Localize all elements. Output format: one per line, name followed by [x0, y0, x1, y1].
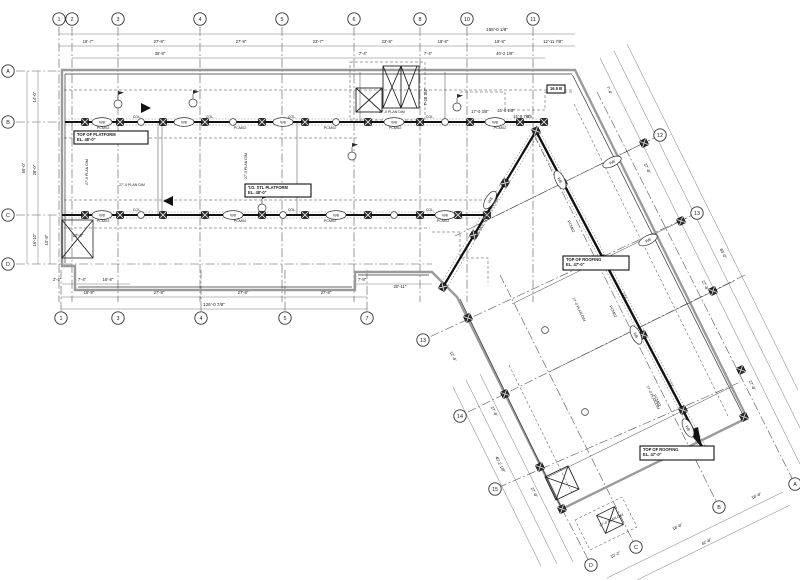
grid-bubble-label: 15	[492, 487, 498, 493]
beam-tag: W8	[680, 417, 697, 439]
dim-text: 168'-0 1/8"	[486, 27, 508, 32]
grid-bubble-label: 3	[117, 17, 120, 23]
grid-bubble-label: 5	[284, 316, 287, 322]
column-marker	[540, 118, 547, 125]
dim-text: 10'-8"	[44, 234, 49, 245]
grid-bubble-label: 13	[420, 338, 426, 344]
dim-text: 23'-7"	[313, 39, 324, 44]
column-marker	[516, 118, 523, 125]
dim-text: PCM02	[234, 126, 247, 130]
beam-tag: W8	[601, 154, 623, 171]
grid-bubble-label: 8	[419, 17, 422, 23]
grid-bubble-label: D	[589, 563, 593, 569]
dim-text: 56'-0"	[21, 162, 26, 173]
beam-tag-label: W8	[280, 120, 286, 125]
grid-bubble-label: 2	[71, 17, 74, 23]
column-marker	[364, 211, 371, 218]
dim-text: 42'-8"	[700, 537, 712, 546]
column-marker	[116, 211, 123, 218]
dimension-text: 168'-0 1/8"18'-7"27'-8"27'-8"23'-7"22'-8…	[21, 27, 763, 559]
dim-text: 18'-8"	[750, 491, 762, 500]
dim-text: PCM02	[97, 219, 110, 223]
grid-bubble-label: C	[6, 213, 10, 219]
connector-circle	[280, 212, 287, 219]
dim-text: 83'-0"	[719, 247, 728, 259]
stair-west	[62, 220, 93, 258]
column-marker	[81, 211, 88, 218]
framing-plan-drawing: W8W8W8W8W8W8W8W8W8W8W8W8W8W8W8 168'-0 1/…	[0, 0, 800, 580]
column-marker	[454, 211, 461, 218]
beam-tag-label: W8	[99, 213, 105, 218]
dim-text: 2'-4"	[53, 277, 62, 282]
column-marker	[116, 118, 123, 125]
dim-text: 18'-8"	[495, 39, 506, 44]
dim-text: COL.	[526, 115, 534, 119]
grid-bubble-label: 5	[281, 17, 284, 23]
grid-bubble-label: D	[6, 262, 10, 268]
dim-text: 7'-10 3/4"	[423, 88, 428, 106]
dim-text: 22'-8"	[382, 39, 393, 44]
dim-text: 16'-10"	[32, 233, 37, 247]
grid-bubble-label: 1	[60, 316, 63, 322]
dim-text: PCM02	[437, 219, 450, 223]
grid-bubble-label: C	[634, 545, 638, 551]
dim-text: 27'-8"	[321, 290, 332, 295]
dim-text: 126'-0 7/8"	[203, 302, 225, 307]
dim-text: 12'-11 7/8"	[543, 39, 563, 44]
dim-text: 12'-4"	[449, 350, 458, 362]
dim-text: PCM02	[234, 219, 247, 223]
connector-circle	[138, 212, 145, 219]
dim-text: PCM02	[608, 305, 617, 318]
dim-text: PCM02	[97, 126, 110, 130]
beam-tag-label: W8	[99, 120, 105, 125]
grid-bubble-label: 4	[199, 17, 202, 23]
dim-text: 27'-8"	[530, 486, 539, 498]
grid-bubble-label: 11	[530, 17, 536, 23]
dim-text: COL.	[206, 115, 214, 119]
dim-text: 15'-8 1/8"	[497, 108, 515, 113]
building-outline-gray	[62, 70, 747, 509]
flag-icon	[457, 94, 463, 98]
beam-tag-label: W8	[391, 120, 397, 125]
dim-text: 17'-0 3/8"	[471, 109, 489, 114]
dim-text: 7'-4"	[424, 51, 433, 56]
dim-text: 18'-8"	[671, 522, 683, 531]
dim-text: 27'-0 PLAN DIM	[244, 153, 248, 179]
dim-text: 14'-0"	[32, 91, 37, 102]
dim-text: COL.	[426, 115, 434, 119]
beam-tag: W8	[637, 232, 659, 249]
dim-text: 7'-4"	[359, 51, 368, 56]
dim-text: 27'-8"	[643, 162, 652, 174]
grid-bubble-label: 13	[694, 211, 700, 217]
column-marker	[364, 118, 371, 125]
dim-text: 7'-4"	[605, 85, 613, 95]
elevator-shaft	[383, 66, 419, 108]
beam-tag: W8	[552, 169, 569, 191]
dim-text: 7'-4"	[78, 277, 87, 282]
framing-plan-sheet: W8W8W8W8W8W8W8W8W8W8W8W8W8W8W8 168'-0 1/…	[0, 0, 800, 580]
column-marker	[258, 118, 265, 125]
dim-text: PCM02	[324, 126, 337, 130]
dim-text: 27'-8"	[236, 39, 247, 44]
dim-text: 18'-7"	[83, 39, 94, 44]
dim-text: 18'-8"	[438, 39, 449, 44]
beam-tag: W8	[174, 118, 194, 127]
beam-tag-label: W8	[442, 213, 448, 218]
column-marker	[301, 118, 308, 125]
grid-bubble-label: 3	[117, 316, 120, 322]
flag-icon	[193, 90, 199, 94]
note-text: 16.5 B	[550, 86, 562, 91]
dim-text: 27'-0 PLAN DIM	[571, 297, 586, 322]
detail-callout	[453, 94, 463, 111]
connector-circle	[442, 119, 449, 126]
column-marker	[81, 118, 88, 125]
dimension-lines	[27, 34, 800, 580]
note-text: EL. 48'-0"	[248, 190, 267, 195]
connector-circle	[542, 327, 549, 334]
grid-bubble-label: 4	[200, 316, 203, 322]
beam-tag-label: W8	[230, 213, 236, 218]
beam-tags: W8W8W8W8W8W8W8W8W8W8W8W8W8W8W8	[92, 118, 696, 439]
column-marker	[466, 118, 473, 125]
connector-circle	[138, 119, 145, 126]
grid-bubble-label: 7	[366, 316, 369, 322]
detail-callout	[258, 195, 268, 212]
grid-bubble-label: 14	[457, 414, 463, 420]
dim-text: 7'-8"	[358, 277, 367, 282]
section-arrow-left	[163, 196, 173, 206]
column-marker	[416, 211, 423, 218]
column-marker	[159, 211, 166, 218]
dim-text: 40'-2 1/8"	[496, 51, 514, 56]
dim-text: 27'-8"	[154, 39, 165, 44]
wall-outlines	[62, 70, 747, 509]
column-marker	[557, 504, 567, 514]
dim-text: 27'-8"	[154, 290, 165, 295]
section-arrow-right	[141, 103, 151, 113]
column-marker	[301, 211, 308, 218]
grid-bubble-label: 10	[464, 17, 470, 23]
column-marker	[201, 118, 208, 125]
column-marker	[676, 216, 686, 226]
grid-bubble-label: A	[6, 69, 10, 75]
dim-text: PCM02	[389, 126, 402, 130]
dim-text: COL.	[133, 115, 141, 119]
detail-callout	[114, 91, 124, 108]
dim-text: 16'-8"	[103, 277, 114, 282]
dim-text: 27'-8"	[748, 379, 757, 391]
column-marker	[201, 211, 208, 218]
grid-bubble-label: B	[6, 120, 10, 126]
detail-callout	[189, 90, 199, 107]
dim-text: 20'-11"	[394, 284, 407, 289]
column-marker	[416, 118, 423, 125]
column-marker	[258, 211, 265, 218]
column-marker	[639, 138, 649, 148]
column-marker	[438, 282, 448, 292]
dim-text: COL.	[426, 208, 434, 212]
dim-text: 18'-8"	[84, 290, 95, 295]
detail-callout	[348, 143, 358, 160]
grid-bubble-label: A	[793, 482, 797, 488]
connector-circle	[230, 119, 237, 126]
dim-text: PCM02	[566, 220, 575, 233]
grid-bubble-label: 1	[58, 17, 61, 23]
dim-text: 27'-8"	[490, 405, 499, 417]
dim-text: 10'-2"	[609, 550, 621, 559]
interior-lines	[64, 62, 734, 550]
connector-circle	[391, 212, 398, 219]
note-text: EL. 47'-0"	[643, 452, 662, 457]
beam-tag-label: W8	[333, 213, 339, 218]
column-marker	[736, 365, 746, 375]
grid-bubble-label: 6	[353, 17, 356, 23]
dim-text: COL.	[288, 208, 296, 212]
dim-text: PCM02	[494, 126, 507, 130]
connector-circle	[582, 409, 589, 416]
connector-circle	[333, 119, 340, 126]
dim-text: COL.	[288, 115, 296, 119]
dim-text: COL.	[133, 208, 141, 212]
dim-text: 27'-0 PLAN DIM	[119, 183, 145, 187]
dim-text: 10'-8"	[73, 233, 84, 238]
dim-text: 36'-8"	[155, 51, 166, 56]
dim-text: 28'-0"	[32, 164, 37, 175]
flag-icon	[352, 143, 358, 147]
dim-text: 27'-8"	[238, 290, 249, 295]
dim-text: 27'-0 PLAN DIM	[379, 110, 405, 114]
dim-text: PCM02	[324, 219, 337, 223]
note-text: EL. 48'-0"	[77, 137, 96, 142]
note-text: EL. 47'-0"	[566, 262, 585, 267]
beam-tag-label: W8	[492, 120, 498, 125]
grid-bubble-label: B	[717, 505, 721, 511]
grid-bubble-label: 12	[657, 133, 663, 139]
column-marker	[159, 118, 166, 125]
flag-icon	[118, 91, 124, 95]
column-marker	[500, 178, 510, 188]
beam-tag-label: W8	[181, 120, 187, 125]
column-marker	[500, 389, 510, 399]
dim-text: 27'-0 PLAN DIM	[85, 159, 89, 185]
column-marker	[531, 126, 541, 136]
